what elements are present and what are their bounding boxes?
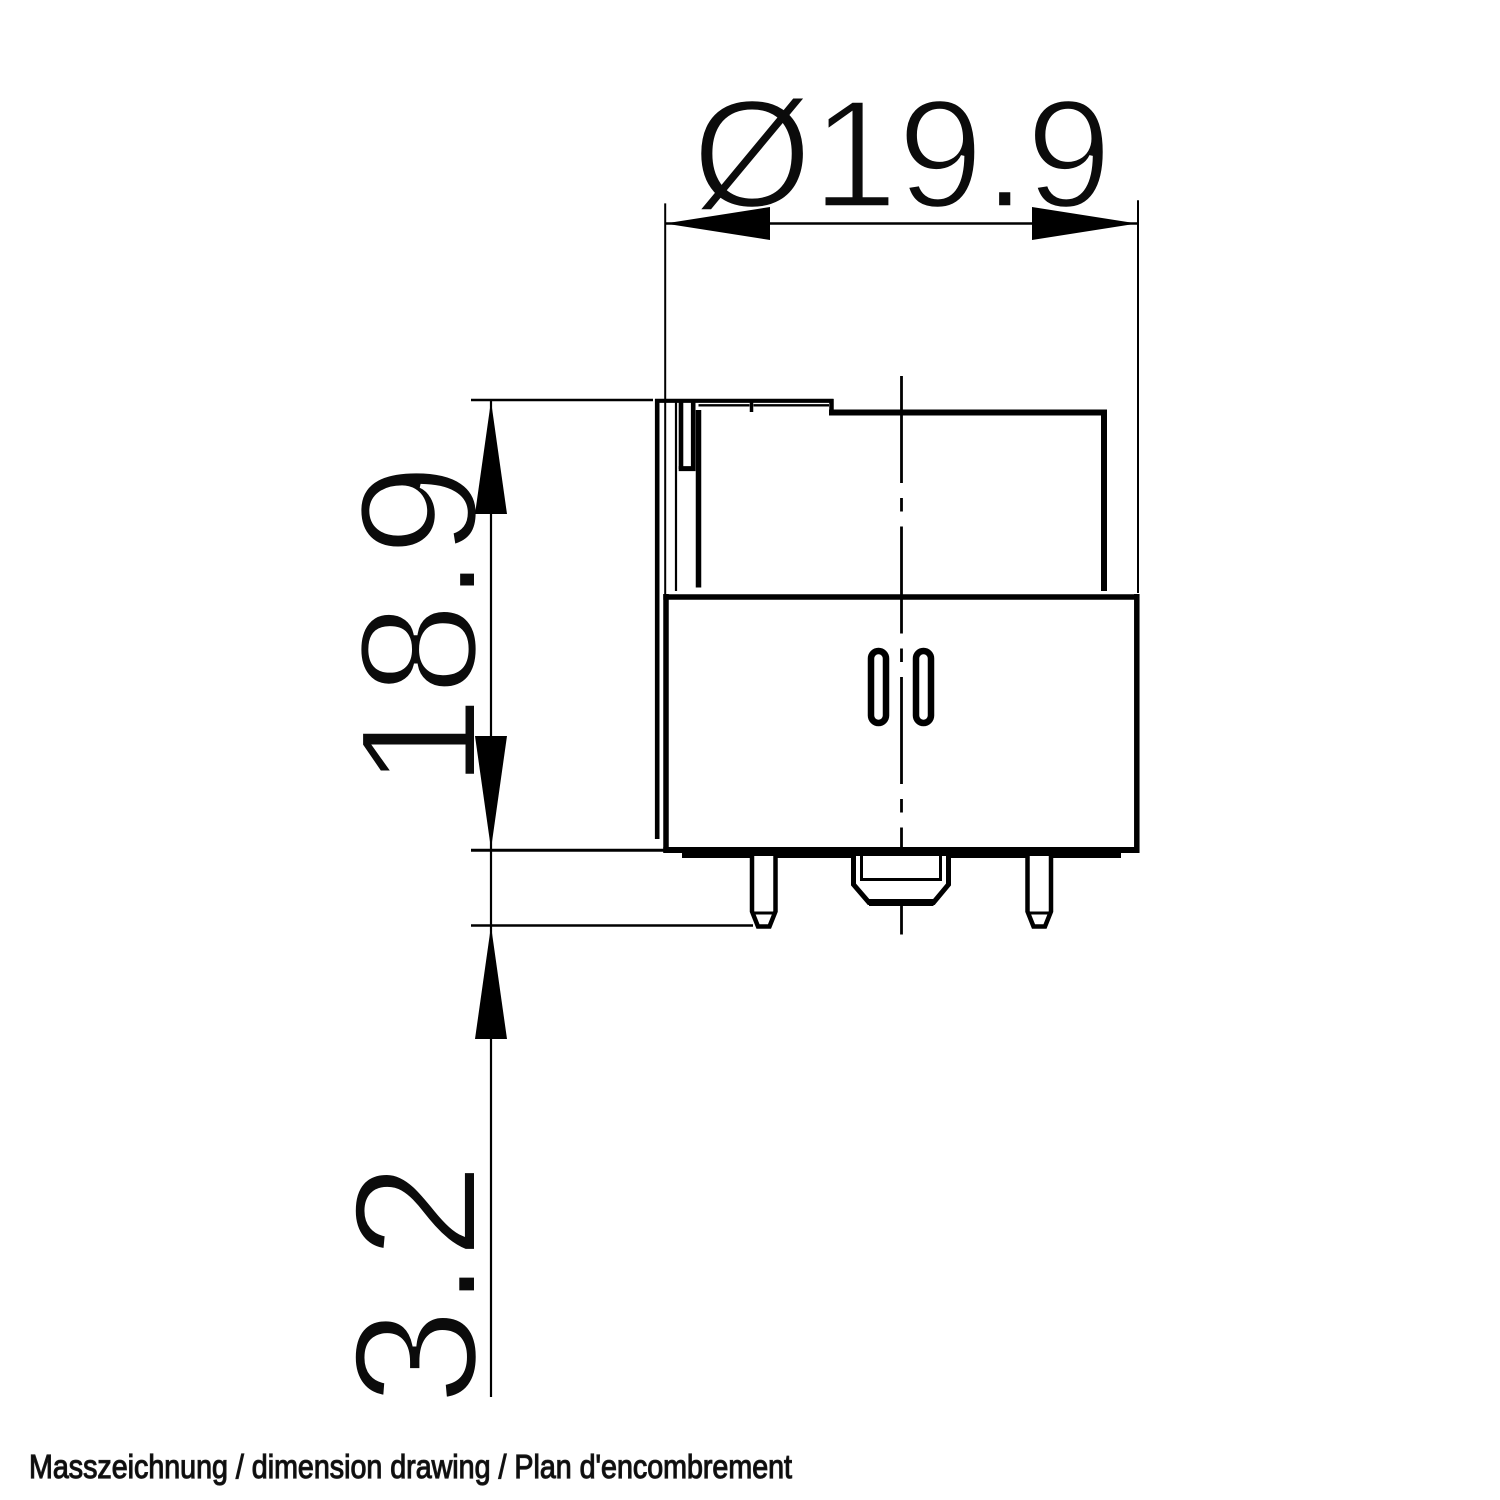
- svg-text:3.2: 3.2: [319, 1162, 514, 1405]
- svg-text:Masszeichnung / dimension draw: Masszeichnung / dimension drawing / Plan…: [29, 1449, 793, 1486]
